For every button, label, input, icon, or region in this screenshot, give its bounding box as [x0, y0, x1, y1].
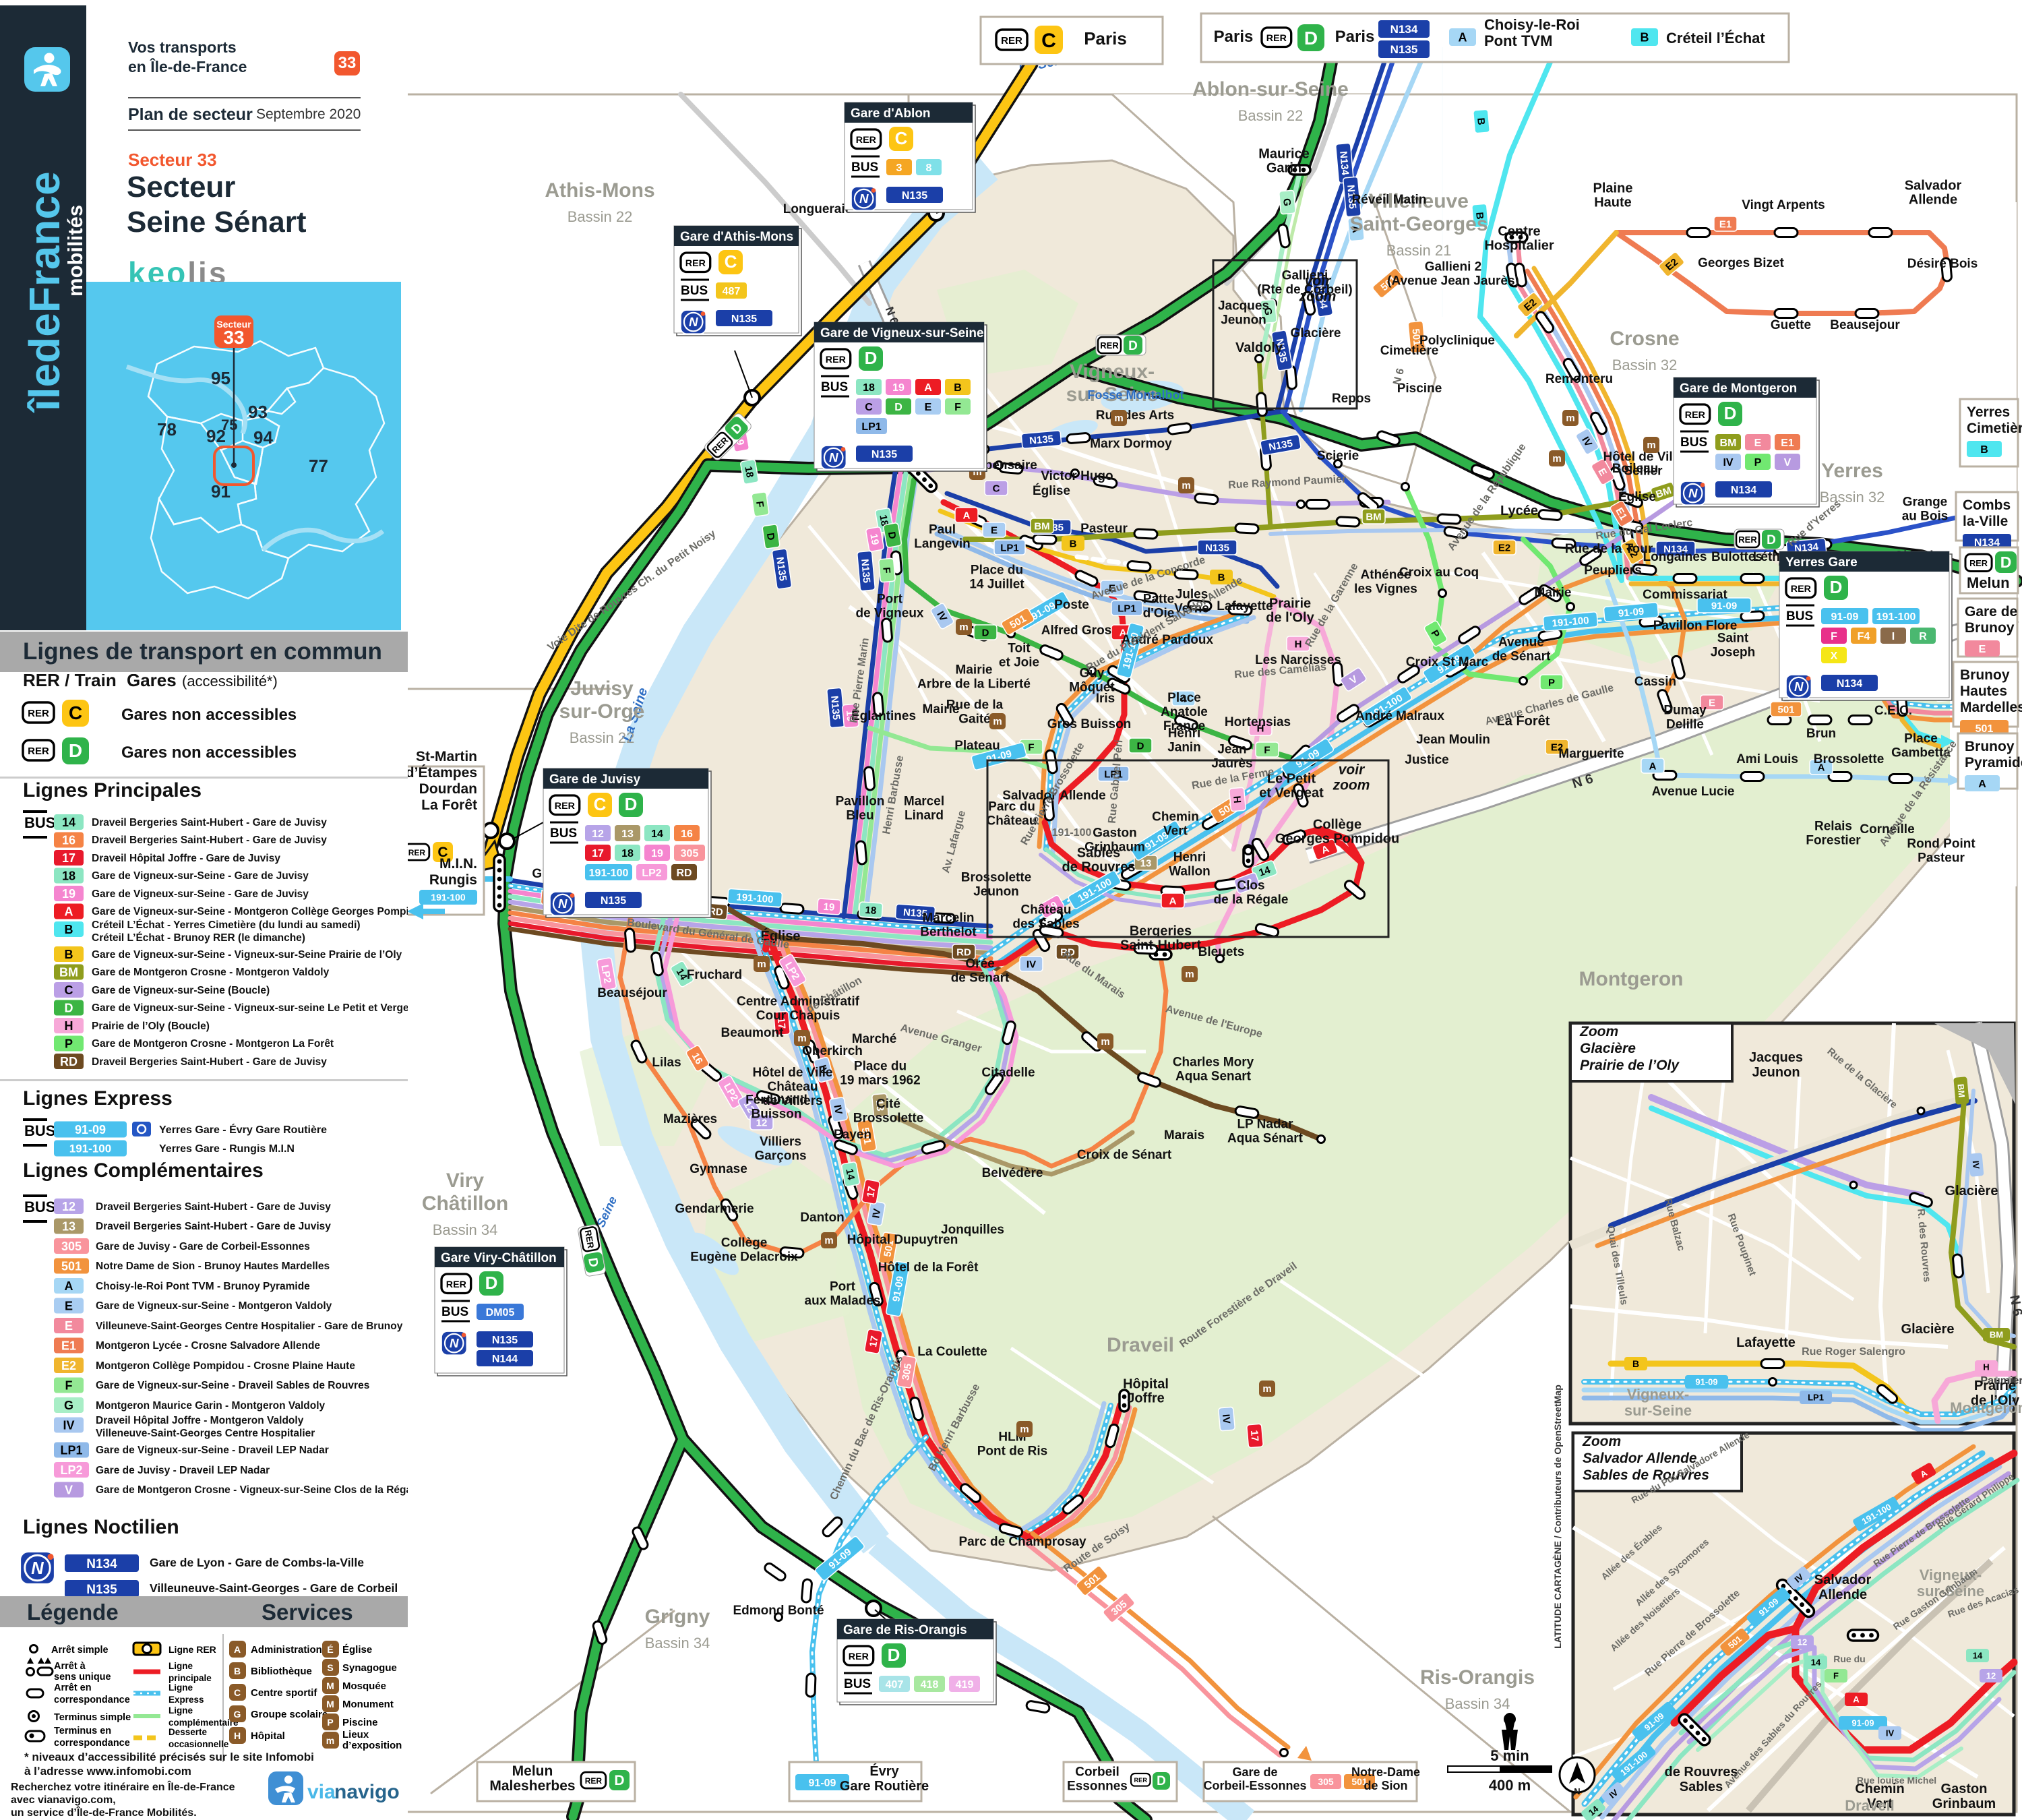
svg-text:Gare de Juvisy: Gare de Juvisy — [549, 772, 641, 787]
svg-text:Brunoy: Brunoy — [1965, 739, 2015, 754]
svg-text:N134: N134 — [1731, 485, 1756, 496]
svg-text:MarcelinBerthelot: MarcelinBerthelot — [920, 911, 977, 940]
svg-text:75: 75 — [221, 417, 237, 433]
svg-text:Beausejour: Beausejour — [1830, 318, 1900, 332]
svg-text:BUS: BUS — [1786, 609, 1813, 624]
svg-text:Gare de Juvisy - Draveil LEP N: Gare de Juvisy - Draveil LEP Nadar — [96, 1465, 270, 1476]
svg-text:Poste: Poste — [1054, 598, 1089, 612]
svg-text:P: P — [1754, 457, 1762, 468]
svg-text:RER: RER — [585, 1776, 603, 1786]
svg-text:Belvédère: Belvédère — [982, 1166, 1043, 1180]
svg-text:Créteil L’Échat - Brunoy RER (: Créteil L’Échat - Brunoy RER (le dimanch… — [92, 932, 305, 944]
svg-text:Gare de Vigneux-sur-Seine: Gare de Vigneux-sur-Seine — [820, 326, 984, 340]
svg-text:N134: N134 — [1337, 150, 1351, 176]
svg-text:C.E.C.: C.E.C. — [1874, 704, 1912, 718]
svg-text:Fruchard: Fruchard — [687, 968, 742, 982]
svg-text:RER: RER — [446, 1279, 466, 1290]
svg-text:RER: RER — [1134, 1777, 1147, 1784]
svg-text:D: D — [1137, 740, 1144, 752]
svg-text:BM: BM — [1955, 1083, 1967, 1097]
svg-text:Montgeron Collège Pompidou - C: Montgeron Collège Pompidou - Crosne Plai… — [96, 1360, 355, 1372]
svg-text:GastonGrinbaum: GastonGrinbaum — [1932, 1782, 1996, 1811]
svg-text:Fosse Montalbot: Fosse Montalbot — [1088, 388, 1184, 402]
svg-text:H: H — [1231, 795, 1243, 803]
svg-text:B: B — [65, 948, 73, 961]
svg-text:Église: Église — [1618, 489, 1656, 504]
svg-text:BUS: BUS — [844, 1677, 871, 1691]
svg-text:E: E — [1754, 437, 1762, 449]
svg-text:D: D — [1128, 339, 1138, 353]
svg-text:17: 17 — [592, 848, 604, 859]
svg-text:19: 19 — [892, 382, 905, 394]
svg-text:V: V — [1784, 457, 1791, 468]
svg-text:MarcelLinard: MarcelLinard — [904, 795, 944, 823]
svg-text:A: A — [1978, 779, 1986, 790]
svg-text:Draveil Bergeries Saint-Hubert: Draveil Bergeries Saint-Hubert - Gare de… — [96, 1221, 331, 1232]
svg-text:Bleuets: Bleuets — [1198, 945, 1245, 959]
svg-text:Guette: Guette — [1771, 318, 1811, 332]
svg-text:Gare de Montgeron Crosne - Mon: Gare de Montgeron Crosne - Montgeron La … — [92, 1038, 334, 1050]
svg-text:Hôtel de la Forêt: Hôtel de la Forêt — [878, 1261, 979, 1275]
svg-text:Gare Viry-Châtillon: Gare Viry-Châtillon — [441, 1251, 557, 1265]
svg-text:BUS: BUS — [441, 1305, 468, 1319]
svg-text:P: P — [327, 1717, 333, 1728]
svg-text:Cassin: Cassin — [1634, 675, 1676, 689]
svg-text:RD: RD — [60, 1055, 78, 1068]
svg-text:PlaineHaute: PlaineHaute — [1593, 181, 1633, 210]
svg-text:Parc de Champrosay: Parc de Champrosay — [958, 1535, 1086, 1549]
svg-text:via: via — [307, 1781, 336, 1803]
svg-text:19: 19 — [867, 533, 881, 545]
svg-text:RER: RER — [1266, 33, 1287, 44]
svg-text:18: 18 — [863, 382, 875, 394]
svg-text:Gare de Montgeron Crosne - Vig: Gare de Montgeron Crosne - Vigneux-sur-S… — [96, 1484, 408, 1496]
svg-text:Hautes: Hautes — [1960, 684, 2007, 699]
svg-text:V: V — [65, 1483, 73, 1496]
svg-text:Repos: Repos — [1332, 392, 1371, 406]
svg-text:M: M — [326, 1699, 334, 1709]
svg-text:Créteil l’Échat: Créteil l’Échat — [1666, 30, 1765, 47]
svg-text:Athénéeles Vignes: Athénéeles Vignes — [1354, 568, 1417, 597]
svg-text:HenriWallon: HenriWallon — [1169, 851, 1211, 879]
svg-text:la-Ville: la-Ville — [1963, 514, 2008, 529]
svg-text:A: A — [1853, 1695, 1860, 1705]
svg-text:Place du14 Juillet: Place du14 Juillet — [969, 564, 1024, 592]
svg-text:Combs: Combs — [1963, 497, 2011, 513]
svg-text:Prairie de l’Oly (Boucle): Prairie de l’Oly (Boucle) — [92, 1021, 210, 1032]
svg-text:IV: IV — [1971, 1160, 1982, 1170]
svg-text:HôpitalJoffre: HôpitalJoffre — [1123, 1377, 1169, 1406]
svg-text:Draveil Hôpital Joffre - Montg: Draveil Hôpital Joffre - Montgeron Valdo… — [96, 1415, 304, 1426]
svg-text:16: 16 — [681, 828, 693, 840]
svg-text:305: 305 — [1318, 1776, 1334, 1787]
svg-text:Rue du: Rue du — [1833, 1654, 1865, 1664]
svg-text:18: 18 — [865, 905, 877, 917]
svg-text:Lycée: Lycée — [1500, 504, 1538, 518]
svg-text:Gare de Vigneux-sur-Seine - Mo: Gare de Vigneux-sur-Seine - Montgeron Co… — [92, 906, 408, 917]
svg-text:LP2: LP2 — [642, 868, 661, 879]
svg-text:Bassin 32: Bassin 32 — [1612, 357, 1678, 373]
svg-text:A: A — [963, 510, 971, 521]
svg-text:Bassin 34: Bassin 34 — [1445, 1695, 1510, 1712]
svg-text:191-100: 191-100 — [1052, 827, 1092, 839]
svg-text:I: I — [1892, 631, 1895, 642]
svg-text:D: D — [485, 1273, 498, 1293]
svg-text:N135: N135 — [86, 1583, 117, 1597]
svg-text:Gare de Vigneux-sur-Seine - Ga: Gare de Vigneux-sur-Seine - Gare de Juvi… — [92, 888, 309, 900]
svg-text:Gare de Vigneux-sur-Seine - Vi: Gare de Vigneux-sur-Seine - Vigneux-sur-… — [92, 949, 402, 961]
svg-text:78: 78 — [157, 419, 177, 439]
svg-text:N: N — [829, 450, 838, 464]
svg-text:N135: N135 — [601, 895, 626, 907]
svg-text:Marx Dormoy: Marx Dormoy — [1090, 437, 1172, 451]
svg-text:Beaumont: Beaumont — [721, 1026, 785, 1040]
svg-text:m: m — [1020, 1424, 1029, 1435]
svg-text:Yerres: Yerres — [1967, 404, 2010, 420]
svg-text:N135: N135 — [1029, 433, 1053, 447]
svg-text:LP2: LP2 — [60, 1463, 82, 1477]
svg-text:Paris: Paris — [1084, 28, 1127, 49]
svg-text:487: 487 — [723, 286, 741, 297]
svg-text:91-09: 91-09 — [75, 1123, 106, 1136]
svg-text:Grigny: Grigny — [645, 1606, 710, 1628]
svg-text:BUS: BUS — [24, 1199, 55, 1215]
svg-text:Edmond Bonté: Edmond Bonté — [733, 1604, 824, 1618]
svg-text:Plateau: Plateau — [954, 739, 1000, 753]
svg-text:Croix au Coq: Croix au Coq — [1399, 566, 1479, 580]
svg-text:IV: IV — [870, 1208, 883, 1219]
svg-text:H: H — [1983, 1362, 1989, 1372]
svg-text:Avenuede Sénart: Avenuede Sénart — [1492, 636, 1551, 664]
svg-text:3: 3 — [896, 162, 902, 174]
svg-text:M: M — [326, 1680, 334, 1691]
svg-text:17: 17 — [1248, 1430, 1260, 1442]
svg-text:Charles MoryAqua Senart: Charles MoryAqua Senart — [1173, 1056, 1254, 1084]
svg-text:B: B — [1641, 30, 1649, 44]
svg-text:94: 94 — [253, 427, 273, 448]
svg-text:D: D — [625, 794, 638, 814]
svg-text:G: G — [234, 1709, 241, 1720]
svg-text:Montgeron Maurice Garin - Mont: Montgeron Maurice Garin - Montgeron Vald… — [96, 1400, 326, 1412]
svg-text:Vingt Arpents: Vingt Arpents — [1742, 198, 1825, 212]
svg-text:RER: RER — [1738, 535, 1757, 545]
svg-text:D: D — [894, 402, 902, 413]
svg-text:419: 419 — [956, 1679, 974, 1691]
svg-text:H: H — [65, 1019, 73, 1033]
svg-text:BUS: BUS — [1680, 435, 1707, 450]
svg-text:Brossolette: Brossolette — [1814, 752, 1885, 766]
svg-text:Grangeau Bois: Grangeau Bois — [1902, 495, 1949, 524]
svg-text:13: 13 — [1140, 857, 1152, 869]
svg-text:Bassin 34: Bassin 34 — [645, 1635, 710, 1651]
svg-text:B: B — [1632, 1358, 1639, 1369]
svg-text:Villeuneve-Saint-Georges Centr: Villeuneve-Saint-Georges Centre Hospital… — [96, 1321, 403, 1332]
svg-text:m: m — [824, 1235, 833, 1246]
svg-text:R: R — [1919, 631, 1927, 642]
svg-text:JeanJaurès: JeanJaurès — [1211, 743, 1252, 771]
svg-text:Payen: Payen — [834, 1128, 871, 1142]
svg-text:Montgeron: Montgeron — [1579, 968, 1684, 990]
svg-text:Désiré Bois: Désiré Bois — [1907, 257, 1978, 271]
svg-text:Draveil Bergeries Saint-Hubert: Draveil Bergeries Saint-Hubert - Gare de… — [92, 1056, 327, 1068]
svg-text:BUS: BUS — [821, 380, 848, 394]
svg-text:Lignes Noctilien: Lignes Noctilien — [23, 1516, 179, 1538]
svg-text:Gare de Vigneux-sur-Seine - Dr: Gare de Vigneux-sur-Seine - Draveil Sabl… — [96, 1380, 369, 1391]
svg-text:BM: BM — [1720, 437, 1737, 449]
svg-text:D: D — [1830, 577, 1843, 597]
svg-text:Vigneux-sur-Seine: Vigneux-sur-Seine — [1624, 1386, 1692, 1419]
svg-text:Brun: Brun — [1806, 727, 1836, 741]
svg-text:Ami Louis: Ami Louis — [1736, 752, 1798, 766]
svg-text:N: N — [558, 897, 568, 911]
svg-text:Victor Hugo: Victor Hugo — [1041, 469, 1113, 483]
svg-text:17: 17 — [865, 1185, 878, 1198]
svg-text:RER: RER — [1791, 584, 1811, 595]
svg-text:Gendarmerie: Gendarmerie — [675, 1202, 754, 1216]
svg-text:C: C — [594, 794, 607, 814]
svg-text:18: 18 — [62, 869, 75, 882]
svg-text:D: D — [982, 627, 989, 638]
svg-text:Iris: Iris — [1096, 692, 1115, 706]
svg-text:14: 14 — [1811, 1658, 1821, 1668]
svg-text:Alfred Gros: Alfred Gros — [1041, 624, 1112, 638]
svg-text:Crosne: Crosne — [1610, 328, 1679, 350]
svg-text:Gare de Vigneux-sur-Seine - Mo: Gare de Vigneux-sur-Seine - Montgeron Va… — [96, 1300, 332, 1312]
svg-text:D: D — [1157, 1774, 1166, 1788]
svg-text:Bassin 34: Bassin 34 — [433, 1221, 498, 1238]
svg-text:BM: BM — [1034, 520, 1049, 532]
svg-text:F: F — [880, 567, 892, 574]
svg-text:BM: BM — [59, 965, 78, 979]
svg-text:LP NadarAqua Sénart: LP NadarAqua Sénart — [1227, 1118, 1304, 1146]
svg-text:Yerres Gare - Évry Gare Routiè: Yerres Gare - Évry Gare Routière — [159, 1123, 327, 1136]
svg-text:E1: E1 — [61, 1339, 76, 1352]
svg-text:N135: N135 — [1390, 43, 1418, 56]
svg-text:Juvisysur-Orge: Juvisysur-Orge — [559, 677, 645, 723]
svg-text:Bassin 22: Bassin 22 — [570, 729, 635, 746]
svg-text:DM05: DM05 — [486, 1307, 515, 1318]
svg-text:Commissariat: Commissariat — [1643, 588, 1727, 602]
svg-text:B: B — [1980, 444, 1988, 456]
svg-text:C: C — [234, 1687, 241, 1698]
svg-text:Brunoy: Brunoy — [1965, 620, 2015, 636]
svg-text:Mairie: Mairie — [1535, 586, 1572, 600]
svg-text:Gare de Montgeron Crosne - Mon: Gare de Montgeron Crosne - Montgeron Val… — [92, 967, 330, 978]
svg-text:C: C — [65, 983, 73, 997]
svg-text:191-100: 191-100 — [1876, 611, 1916, 623]
svg-text:Gare d'Athis-Mons: Gare d'Athis-Mons — [680, 230, 793, 244]
svg-text:RER: RER — [826, 355, 846, 365]
svg-text:A: A — [65, 905, 73, 918]
svg-text:91-09: 91-09 — [1695, 1377, 1717, 1387]
svg-text:m: m — [1101, 1036, 1109, 1048]
svg-text:91-09: 91-09 — [809, 1778, 836, 1789]
svg-text:X: X — [1831, 650, 1838, 662]
svg-text:SalvadorAllende: SalvadorAllende — [1814, 1573, 1872, 1602]
svg-text:A: A — [924, 382, 932, 394]
svg-text:N144: N144 — [492, 1354, 518, 1365]
svg-text:m: m — [1566, 413, 1574, 424]
svg-text:13: 13 — [62, 1219, 75, 1233]
svg-text:Draveil: Draveil — [1107, 1334, 1174, 1356]
svg-text:N135: N135 — [859, 558, 872, 583]
svg-text:A: A — [1169, 895, 1177, 907]
svg-text:Bassin 21: Bassin 21 — [1386, 242, 1452, 259]
svg-text:BUS: BUS — [550, 826, 577, 841]
svg-text:IV: IV — [1886, 1728, 1895, 1738]
svg-text:N135: N135 — [492, 1335, 518, 1346]
svg-text:Synagogue: Synagogue — [342, 1662, 397, 1674]
svg-text:91-09: 91-09 — [1831, 611, 1859, 623]
svg-text:F: F — [1264, 744, 1270, 756]
svg-text:F: F — [1831, 631, 1837, 642]
svg-text:Rue Roger Salengro: Rue Roger Salengro — [1802, 1346, 1905, 1358]
svg-text:RER: RER — [555, 801, 575, 812]
svg-text:B: B — [1070, 538, 1077, 549]
svg-text:Hôpital: Hôpital — [251, 1730, 285, 1742]
svg-text:îledeFrance: îledeFrance — [20, 171, 69, 413]
svg-text:Yerres Gare: Yerres Gare — [1785, 555, 1858, 570]
svg-text:Paris: Paris — [1335, 28, 1375, 46]
svg-text:Mazières: Mazières — [663, 1112, 717, 1126]
svg-text:305: 305 — [681, 848, 699, 859]
svg-text:A: A — [1649, 760, 1657, 772]
svg-text:Ris-Orangis: Ris-Orangis — [1420, 1666, 1535, 1689]
svg-text:Draveil: Draveil — [1845, 1797, 1894, 1814]
svg-text:12: 12 — [1798, 1637, 1807, 1647]
svg-text:Pyramide: Pyramide — [1965, 755, 2022, 770]
svg-text:SalvadorAllende: SalvadorAllende — [1905, 179, 1962, 208]
svg-text:H: H — [1295, 638, 1302, 650]
svg-text:B: B — [1475, 117, 1487, 125]
svg-text:GastonGrinbaum: GastonGrinbaum — [1084, 826, 1145, 855]
svg-text:Citadelle: Citadelle — [981, 1066, 1035, 1080]
svg-text:G: G — [64, 1399, 73, 1412]
svg-text:N: N — [1794, 679, 1804, 694]
svg-text:18: 18 — [621, 848, 634, 859]
svg-text:Draveil Bergeries Saint-Hubert: Draveil Bergeries Saint-Hubert - Gare de… — [96, 1201, 331, 1213]
svg-text:D: D — [65, 1001, 73, 1014]
svg-text:E2: E2 — [1498, 542, 1510, 553]
svg-text:Glacière: Glacière — [1291, 326, 1341, 340]
svg-text:C: C — [1041, 30, 1056, 52]
svg-text:F: F — [1833, 1671, 1839, 1681]
svg-text:D: D — [1304, 28, 1318, 49]
svg-text:Notre Dame de Sion - Brunoy Ha: Notre Dame de Sion - Brunoy Hautes Marde… — [96, 1261, 330, 1272]
svg-text:Draveil Hôpital Joffre - Gare: Draveil Hôpital Joffre - Gare de Juvisy — [92, 853, 280, 864]
svg-text:m: m — [1552, 453, 1561, 464]
svg-text:33: 33 — [223, 327, 244, 348]
svg-text:19: 19 — [823, 901, 835, 913]
svg-text:Ablon-sur-Seine: Ablon-sur-Seine — [1192, 78, 1349, 100]
svg-text:E1: E1 — [1719, 218, 1732, 230]
svg-text:Gare de Lyon - Gare de Combs-l: Gare de Lyon - Gare de Combs-la-Ville — [150, 1556, 364, 1569]
svg-text:m: m — [993, 716, 1002, 727]
svg-text:A: A — [234, 1644, 241, 1655]
svg-text:E: E — [1979, 644, 1986, 655]
svg-text:É: É — [327, 1644, 333, 1655]
svg-text:voirzoom: voirzoom — [1299, 274, 1337, 305]
svg-text:IV: IV — [63, 1418, 74, 1432]
svg-text:N: N — [689, 315, 698, 329]
svg-text:Gares non accessibles: Gares non accessibles — [121, 706, 297, 724]
svg-text:13: 13 — [621, 828, 634, 840]
svg-text:m: m — [757, 959, 766, 970]
svg-text:F: F — [954, 402, 961, 413]
svg-text:418: 418 — [921, 1679, 939, 1691]
svg-text:Draveil Bergeries Saint-Hubert: Draveil Bergeries Saint-Hubert - Gare de… — [92, 835, 327, 846]
svg-text:Paris: Paris — [1214, 28, 1254, 46]
svg-text:Oberkirch: Oberkirch — [802, 1044, 863, 1058]
svg-text:G: G — [1281, 198, 1293, 207]
svg-text:Georges Bizet: Georges Bizet — [1698, 256, 1784, 270]
svg-text:Glacière: Glacière — [1901, 1322, 1955, 1337]
svg-text:E2: E2 — [61, 1359, 76, 1372]
svg-text:D: D — [865, 348, 878, 368]
svg-text:D: D — [2000, 553, 2012, 571]
svg-text:95: 95 — [211, 368, 231, 388]
svg-text:Créteil L’Échat - Yerres Cimet: Créteil L’Échat - Yerres Cimetière (du l… — [92, 919, 361, 931]
svg-text:P: P — [65, 1037, 73, 1050]
svg-text:Monument: Monument — [342, 1699, 394, 1710]
svg-text:16: 16 — [62, 833, 75, 847]
svg-text:RER: RER — [1685, 410, 1705, 421]
svg-text:14: 14 — [651, 828, 663, 840]
svg-text:N134: N134 — [86, 1557, 117, 1571]
svg-text:12: 12 — [1986, 1671, 1996, 1681]
svg-text:Gare d'Ablon: Gare d'Ablon — [851, 107, 931, 121]
svg-text:m: m — [1182, 480, 1190, 491]
svg-text:RER: RER — [28, 746, 49, 757]
svg-text:Peupliers: Peupliers — [1584, 564, 1642, 578]
svg-text:Rue louise Michel: Rue louise Michel — [1857, 1775, 1936, 1786]
svg-text:Rue des Arts: Rue des Arts — [1096, 408, 1175, 423]
svg-text:D: D — [69, 740, 82, 761]
svg-text:mobilités: mobilités — [63, 205, 86, 297]
svg-text:Draveil Bergeries Saint-Hubert: Draveil Bergeries Saint-Hubert - Gare de… — [92, 817, 327, 828]
svg-text:RER: RER — [1969, 558, 1988, 568]
svg-text:VilliersGarçons: VilliersGarçons — [754, 1135, 806, 1163]
svg-text:19: 19 — [651, 848, 663, 859]
svg-text:LP1: LP1 — [861, 421, 881, 433]
svg-text:Gare de Vigneux-sur-Seine - Dr: Gare de Vigneux-sur-Seine - Draveil LEP … — [96, 1445, 329, 1456]
svg-text:B: B — [234, 1666, 241, 1676]
svg-text:BUS: BUS — [24, 1122, 55, 1139]
svg-text:Marguerite: Marguerite — [1558, 747, 1624, 761]
svg-text:A: A — [65, 1279, 73, 1293]
svg-text:voirzoom: voirzoom — [1332, 762, 1370, 793]
svg-text:18: 18 — [742, 465, 756, 478]
svg-text:Gros Buisson: Gros Buisson — [1047, 717, 1132, 731]
svg-text:navigo: navigo — [334, 1781, 400, 1803]
svg-text:Bassin 22: Bassin 22 — [568, 208, 633, 225]
svg-text:Lignes Principales: Lignes Principales — [23, 779, 202, 801]
svg-text:14: 14 — [62, 816, 75, 829]
svg-text:N135: N135 — [902, 190, 927, 202]
svg-text:12: 12 — [592, 828, 604, 840]
svg-text:F4: F4 — [1858, 631, 1870, 642]
svg-text:HenriJanin: HenriJanin — [1167, 727, 1201, 755]
svg-text:Justice: Justice — [1405, 753, 1448, 767]
svg-text:Hortensias: Hortensias — [1225, 715, 1291, 729]
svg-text:Gymnase: Gymnase — [690, 1162, 747, 1176]
svg-text:Jonquilles: Jonquilles — [941, 1223, 1004, 1237]
svg-text:JacquesJeunon: JacquesJeunon — [1749, 1050, 1803, 1080]
svg-text:Châteaudes Sables: Châteaudes Sables — [1012, 903, 1079, 932]
svg-text:DumayDelille: DumayDelille — [1663, 704, 1707, 732]
svg-text:Bibliothèque: Bibliothèque — [251, 1666, 312, 1677]
svg-text:F: F — [1028, 741, 1034, 753]
